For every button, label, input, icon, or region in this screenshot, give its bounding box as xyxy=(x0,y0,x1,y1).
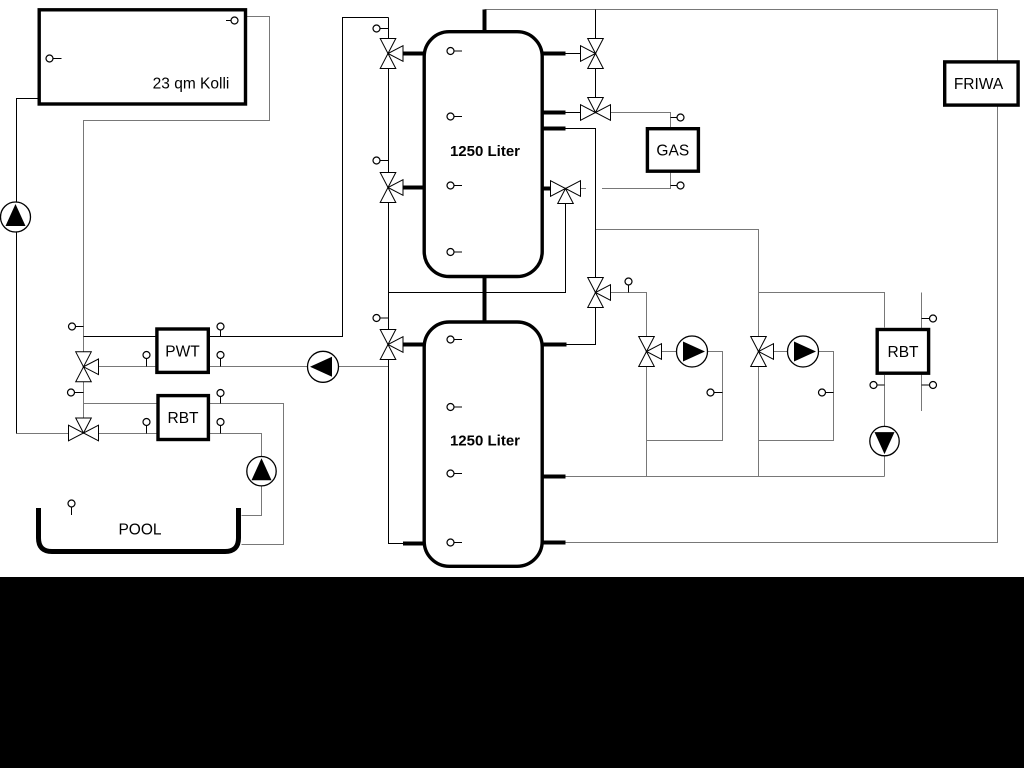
svg-text:GAS: GAS xyxy=(656,143,689,160)
svg-text:1250 Liter: 1250 Liter xyxy=(450,143,520,160)
svg-text:PWT: PWT xyxy=(165,343,200,360)
svg-text:RBT: RBT xyxy=(168,410,200,427)
svg-text:1250 Liter: 1250 Liter xyxy=(450,433,520,450)
svg-text:23 qm Kolli: 23 qm Kolli xyxy=(153,76,230,93)
svg-text:RBT: RBT xyxy=(888,344,920,361)
svg-text:FRIWA: FRIWA xyxy=(954,76,1004,93)
svg-text:POOL: POOL xyxy=(118,522,161,539)
